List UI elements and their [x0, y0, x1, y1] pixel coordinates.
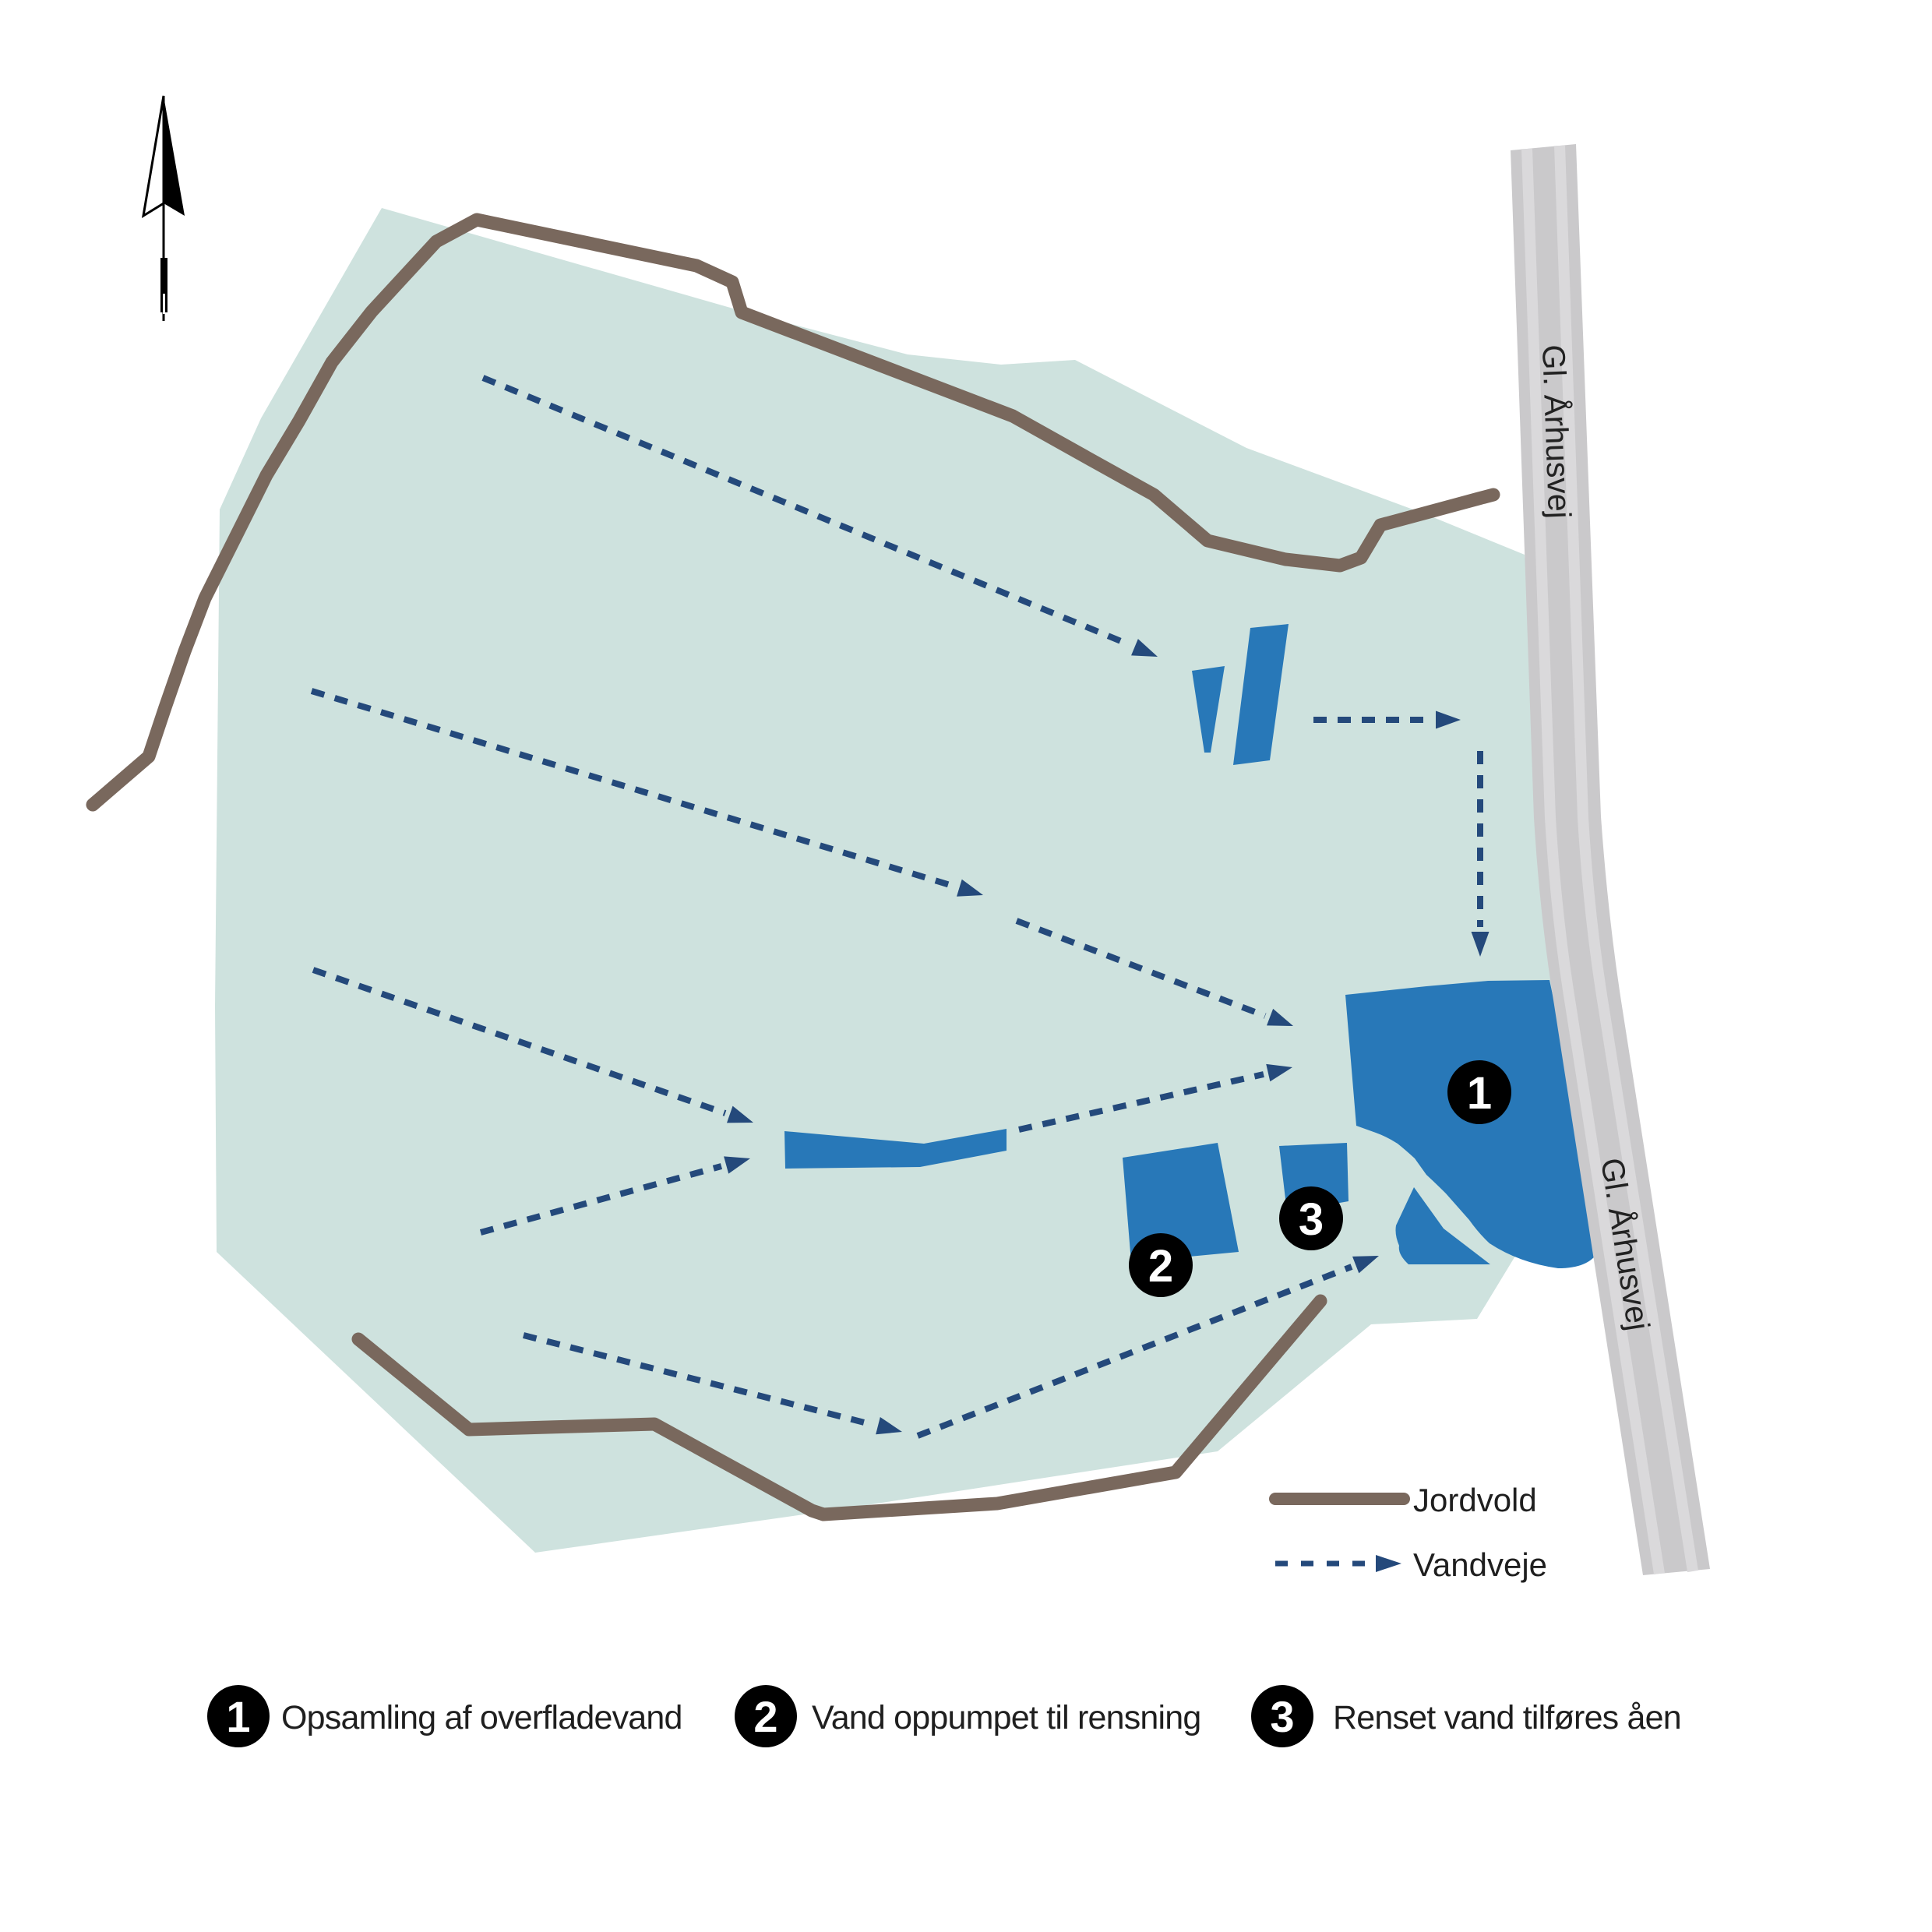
svg-text:2: 2 [1148, 1241, 1173, 1292]
svg-text:Jordvold: Jordvold [1413, 1482, 1537, 1518]
svg-text:Vand oppumpet til rensning: Vand oppumpet til rensning [812, 1699, 1201, 1736]
svg-text:Vandveje: Vandveje [1413, 1546, 1547, 1583]
svg-text:Renset vand tilføres åen: Renset vand tilføres åen [1333, 1699, 1681, 1736]
svg-text:1: 1 [1467, 1068, 1492, 1119]
svg-text:3: 3 [1299, 1194, 1324, 1245]
svg-text:1: 1 [226, 1692, 250, 1741]
svg-text:2: 2 [753, 1692, 777, 1741]
svg-text:Opsamling af overfladevand: Opsamling af overfladevand [281, 1699, 682, 1736]
svg-text:3: 3 [1270, 1692, 1294, 1741]
svg-text:Gl. Århusvej: Gl. Århusvej [1535, 344, 1578, 520]
